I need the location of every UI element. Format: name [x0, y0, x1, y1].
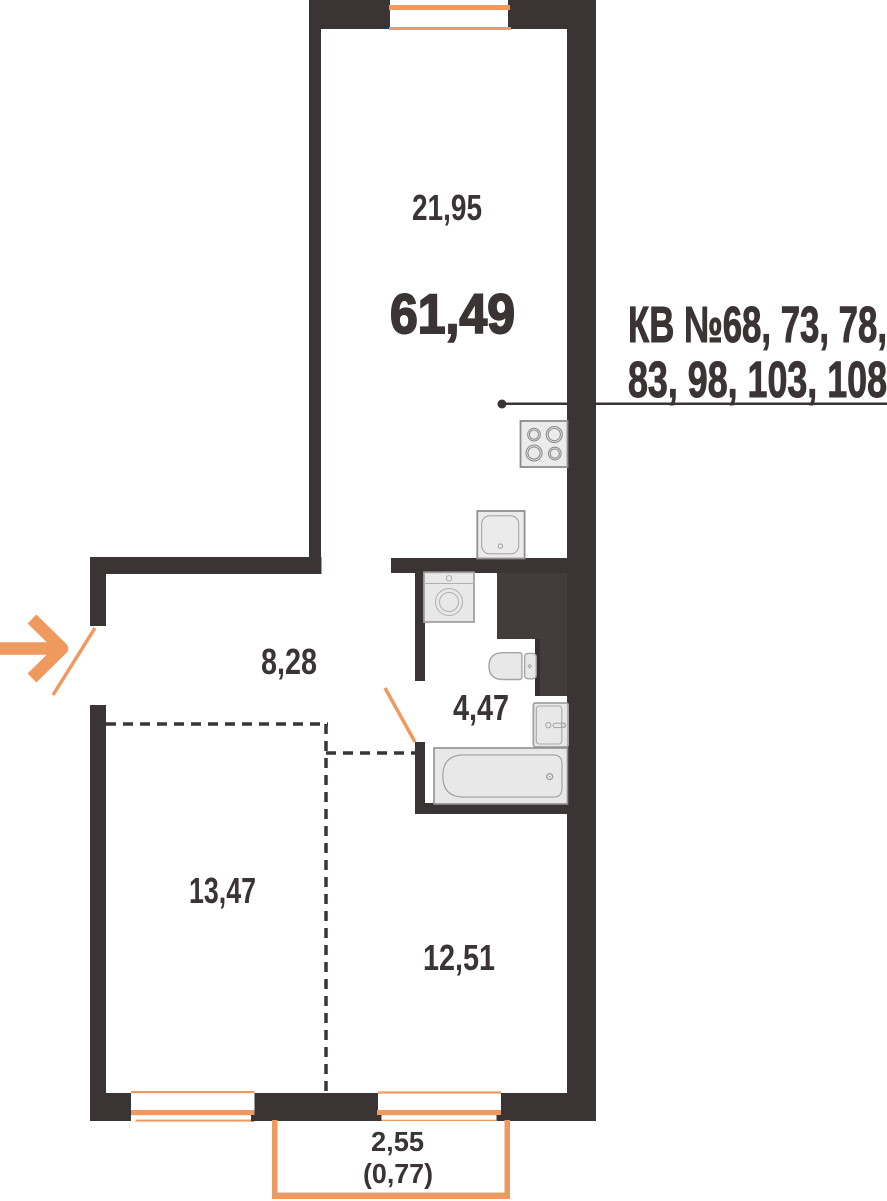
svg-text:13,47: 13,47 [189, 870, 256, 911]
svg-text:(0,77): (0,77) [363, 1158, 433, 1189]
svg-text:4,47: 4,47 [453, 687, 509, 728]
svg-text:8,28: 8,28 [261, 641, 317, 682]
svg-text:83, 98, 103, 108: 83, 98, 103, 108 [628, 351, 887, 408]
svg-text:КВ №68, 73, 78,: КВ №68, 73, 78, [628, 296, 887, 353]
svg-text:2,55: 2,55 [371, 1126, 424, 1157]
svg-text:21,95: 21,95 [412, 187, 482, 228]
svg-text:12,51: 12,51 [423, 937, 495, 978]
svg-text:61,49: 61,49 [390, 282, 515, 345]
